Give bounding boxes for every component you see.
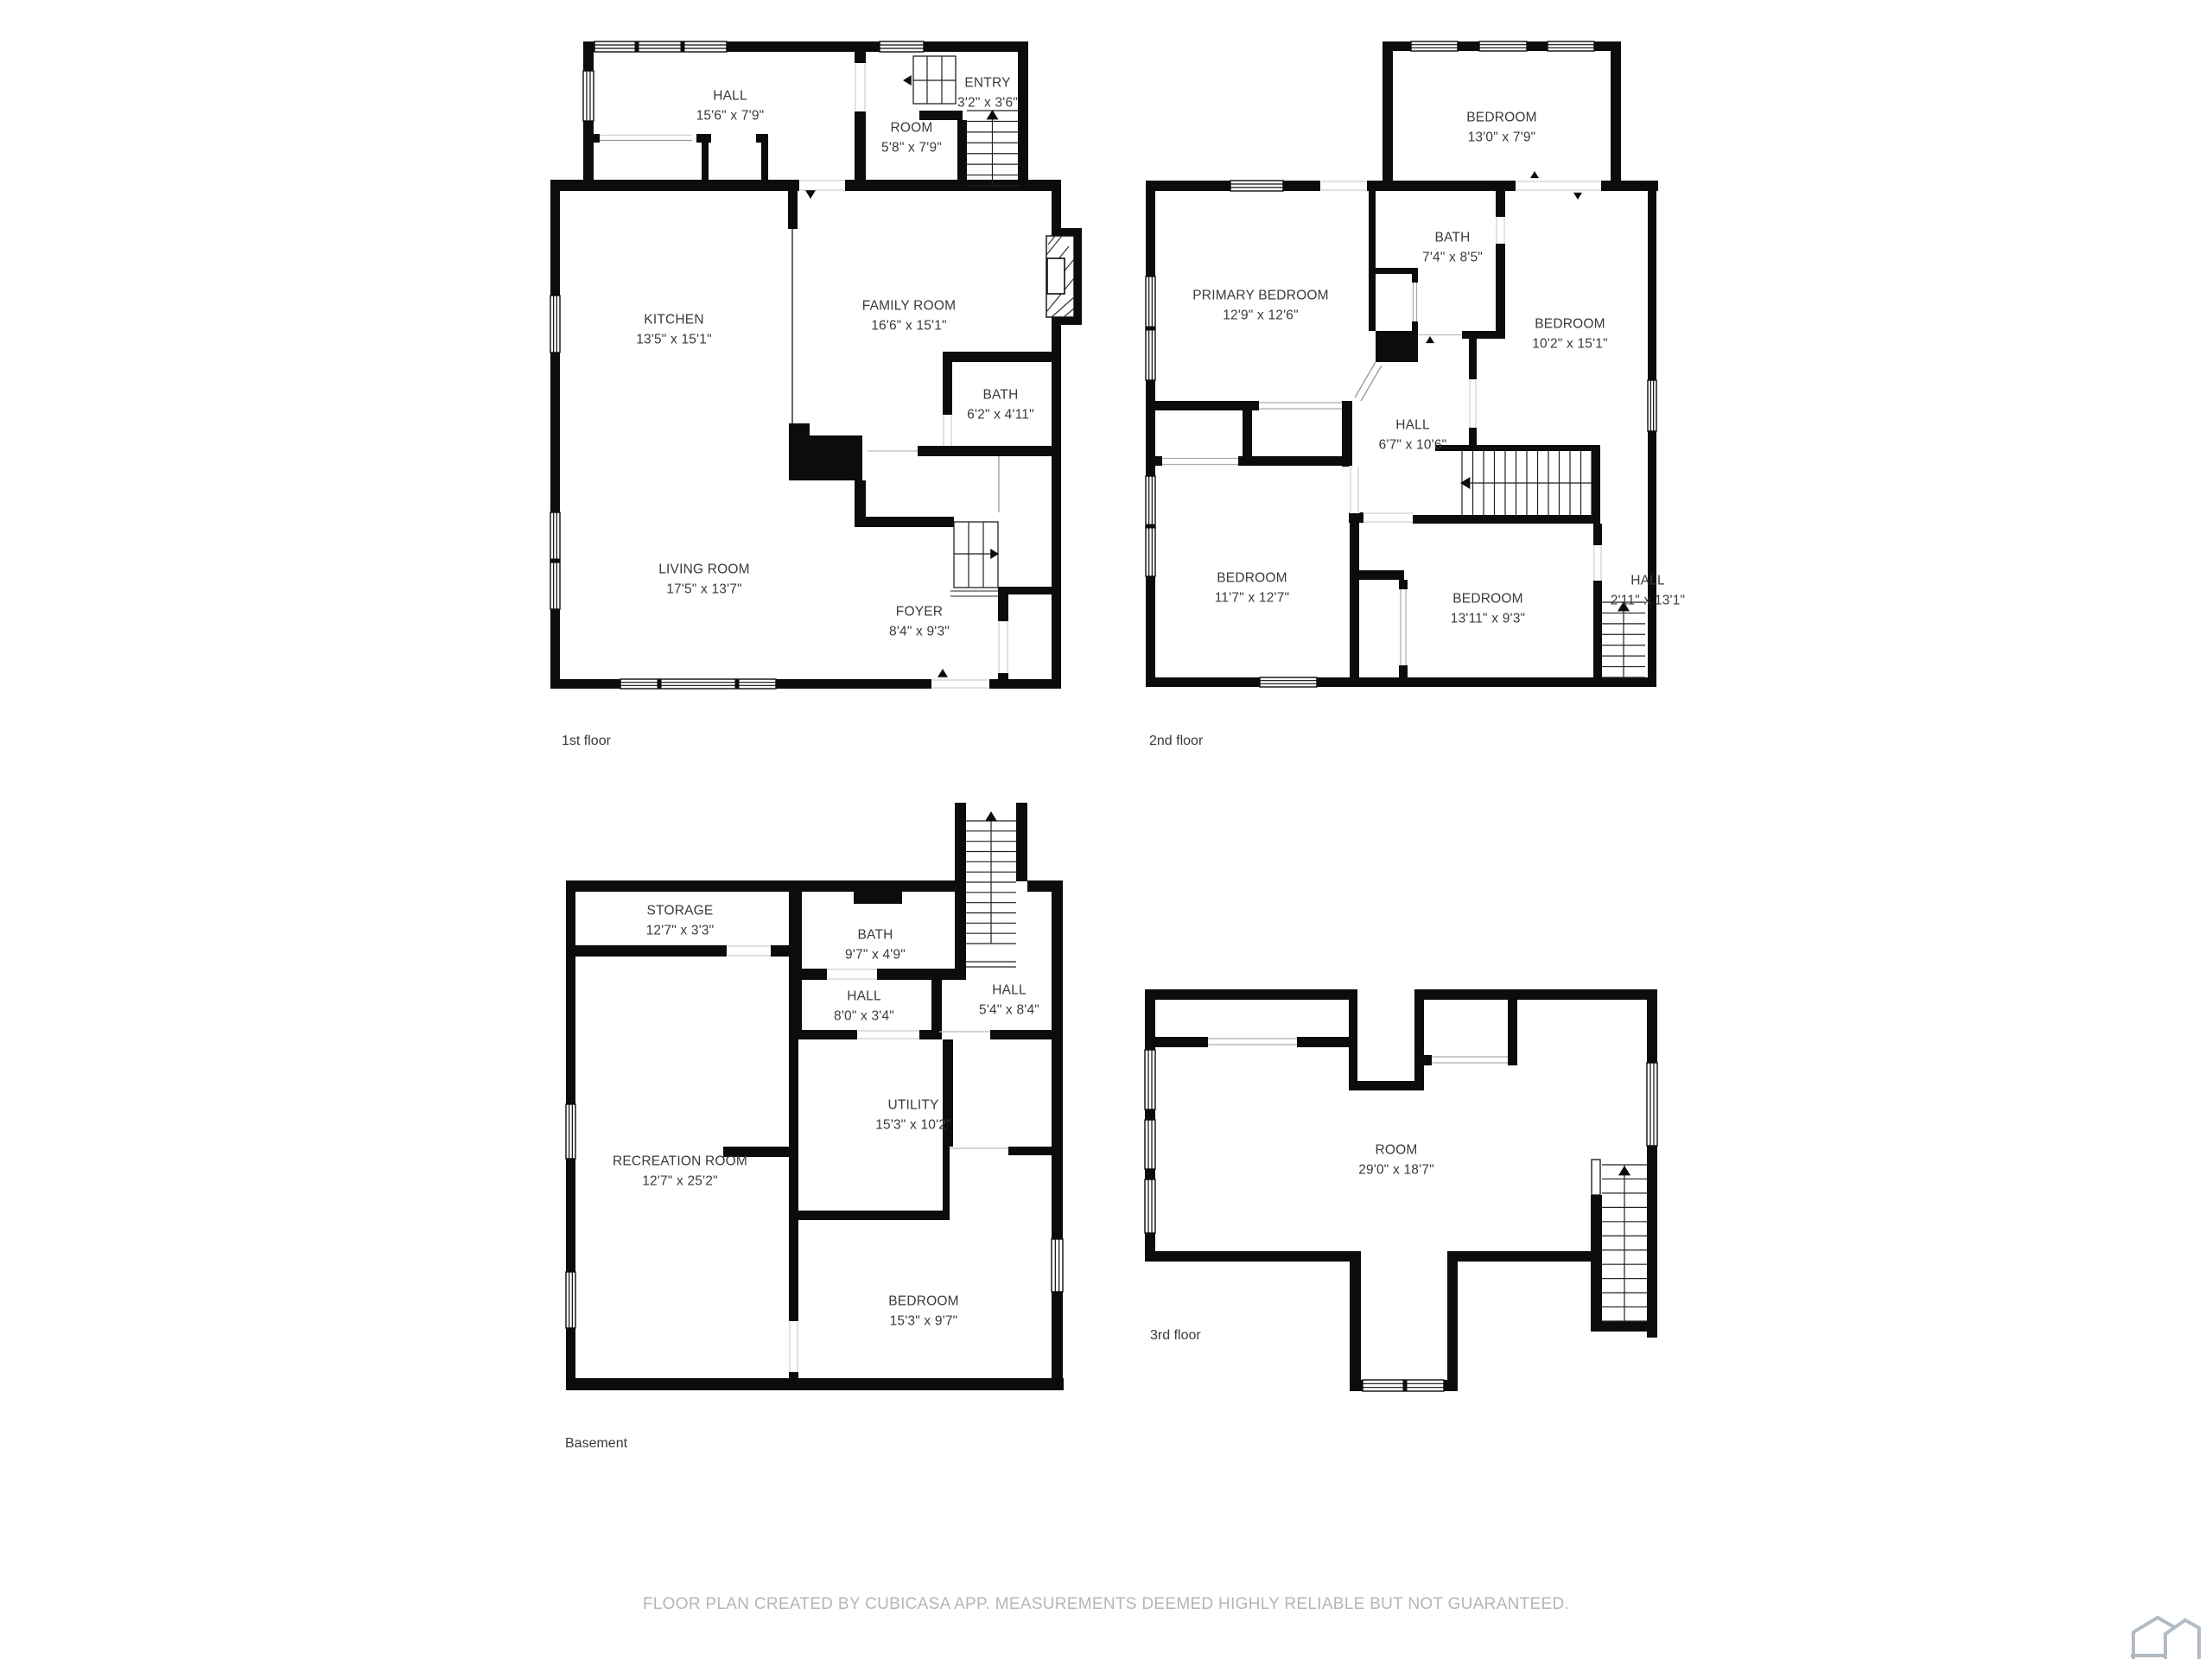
svg-text:HALL: HALL bbox=[1395, 417, 1430, 432]
svg-text:12'7" x 3'3": 12'7" x 3'3" bbox=[646, 923, 715, 938]
svg-text:10'2" x 15'1": 10'2" x 15'1" bbox=[1532, 336, 1608, 351]
svg-text:BEDROOM: BEDROOM bbox=[1217, 570, 1287, 585]
svg-text:6'7" x 10'6": 6'7" x 10'6" bbox=[1379, 437, 1447, 452]
svg-text:BATH: BATH bbox=[1435, 230, 1471, 245]
svg-text:15'3" x 10'2": 15'3" x 10'2" bbox=[875, 1117, 951, 1132]
svg-text:7'4" x 8'5": 7'4" x 8'5" bbox=[1422, 250, 1483, 264]
svg-text:8'4" x 9'3": 8'4" x 9'3" bbox=[889, 624, 950, 639]
svg-text:3'2" x 3'6": 3'2" x 3'6" bbox=[957, 95, 1018, 110]
svg-text:KITCHEN: KITCHEN bbox=[644, 312, 703, 327]
svg-text:2nd floor: 2nd floor bbox=[1149, 734, 1204, 748]
svg-text:BATH: BATH bbox=[983, 387, 1019, 402]
svg-text:UTILITY: UTILITY bbox=[887, 1097, 938, 1112]
svg-text:ROOM: ROOM bbox=[1375, 1142, 1417, 1157]
svg-text:BEDROOM: BEDROOM bbox=[888, 1294, 959, 1308]
svg-text:LIVING ROOM: LIVING ROOM bbox=[658, 562, 750, 576]
svg-text:5'8" x 7'9": 5'8" x 7'9" bbox=[881, 140, 942, 155]
svg-text:9'7" x 4'9": 9'7" x 4'9" bbox=[845, 947, 906, 962]
svg-text:FOYER: FOYER bbox=[896, 604, 943, 619]
svg-text:HALL: HALL bbox=[847, 988, 881, 1003]
svg-text:BATH: BATH bbox=[858, 927, 893, 942]
svg-text:6'2" x 4'11": 6'2" x 4'11" bbox=[967, 407, 1034, 422]
svg-text:HALL: HALL bbox=[992, 982, 1027, 997]
svg-text:FLOOR PLAN CREATED BY CUBICASA: FLOOR PLAN CREATED BY CUBICASA APP. MEAS… bbox=[643, 1595, 1569, 1613]
svg-text:Basement: Basement bbox=[565, 1436, 628, 1451]
svg-text:12'7" x 25'2": 12'7" x 25'2" bbox=[642, 1173, 718, 1188]
svg-text:12'9" x 12'6": 12'9" x 12'6" bbox=[1223, 308, 1299, 322]
svg-text:BEDROOM: BEDROOM bbox=[1466, 110, 1537, 124]
svg-text:PRIMARY BEDROOM: PRIMARY BEDROOM bbox=[1192, 288, 1328, 302]
svg-text:16'6" x 15'1": 16'6" x 15'1" bbox=[871, 318, 947, 333]
svg-text:BEDROOM: BEDROOM bbox=[1452, 591, 1523, 606]
svg-text:15'6" x 7'9": 15'6" x 7'9" bbox=[696, 108, 765, 123]
svg-text:29'0" x 18'7": 29'0" x 18'7" bbox=[1358, 1162, 1434, 1177]
svg-text:5'4" x 8'4": 5'4" x 8'4" bbox=[979, 1002, 1039, 1017]
svg-text:FAMILY ROOM: FAMILY ROOM bbox=[862, 298, 956, 313]
svg-text:HALL: HALL bbox=[1630, 573, 1665, 588]
svg-text:17'5" x 13'7": 17'5" x 13'7" bbox=[666, 582, 742, 596]
svg-text:8'0" x 3'4": 8'0" x 3'4" bbox=[834, 1008, 894, 1023]
svg-text:15'3" x 9'7": 15'3" x 9'7" bbox=[890, 1313, 958, 1328]
svg-text:2'11" x 13'1": 2'11" x 13'1" bbox=[1611, 593, 1685, 607]
svg-text:ROOM: ROOM bbox=[890, 120, 932, 135]
svg-text:STORAGE: STORAGE bbox=[647, 903, 714, 918]
svg-text:1st floor: 1st floor bbox=[562, 734, 612, 748]
svg-text:13'0" x 7'9": 13'0" x 7'9" bbox=[1468, 130, 1536, 144]
svg-text:BEDROOM: BEDROOM bbox=[1535, 316, 1605, 331]
svg-text:11'7" x 12'7": 11'7" x 12'7" bbox=[1215, 590, 1289, 605]
svg-text:HALL: HALL bbox=[713, 88, 747, 103]
svg-text:RECREATION ROOM: RECREATION ROOM bbox=[613, 1154, 747, 1168]
svg-text:13'5" x 15'1": 13'5" x 15'1" bbox=[636, 332, 712, 346]
svg-text:3rd floor: 3rd floor bbox=[1150, 1328, 1201, 1343]
svg-text:13'11" x 9'3": 13'11" x 9'3" bbox=[1451, 611, 1525, 626]
svg-text:ENTRY: ENTRY bbox=[964, 75, 1010, 90]
